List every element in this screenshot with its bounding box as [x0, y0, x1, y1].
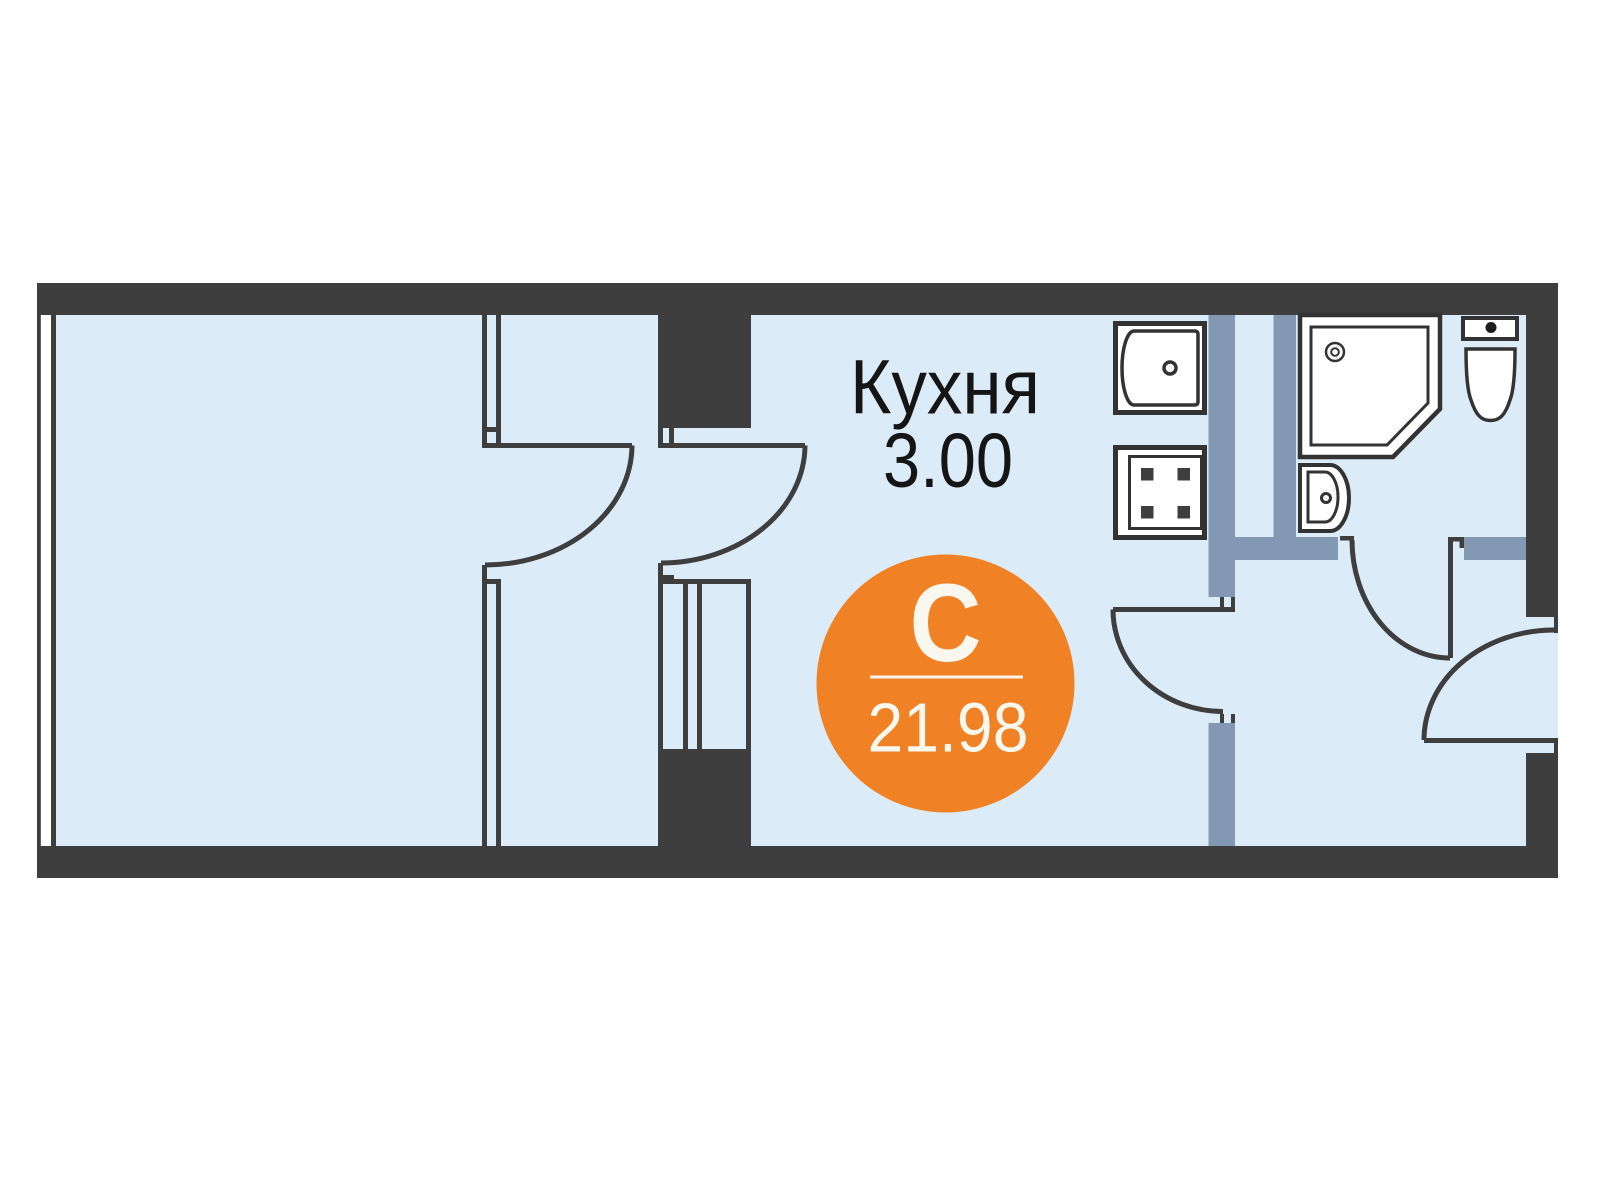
svg-text:21.98: 21.98: [868, 689, 1029, 767]
svg-text:С: С: [910, 562, 982, 685]
svg-text:3.00: 3.00: [883, 418, 1013, 504]
